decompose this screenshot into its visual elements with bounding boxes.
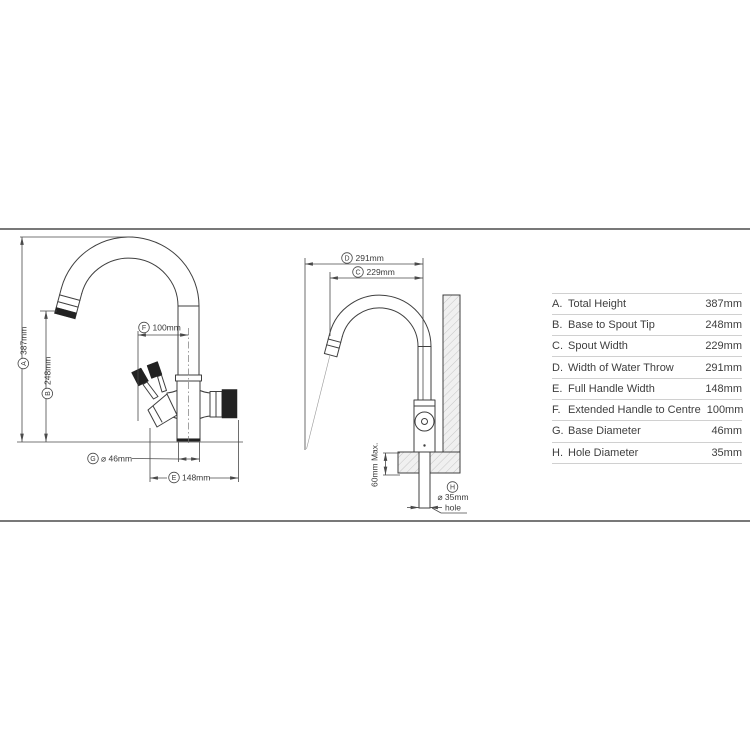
water-stream-line xyxy=(307,355,331,449)
spec-table-row: H. Hole Diameter 35mm xyxy=(552,442,742,463)
lever-shaft xyxy=(158,375,167,392)
spec-table-row: B. Base to Spout Tip 248mm xyxy=(552,314,742,335)
svg-text:229mm: 229mm xyxy=(367,267,395,277)
spec-row-key: E. xyxy=(552,383,568,395)
dim-width-of-water-throw: D 291mm xyxy=(305,253,423,450)
dim-hole-diameter: H ⌀ 35mm hole xyxy=(407,482,469,513)
spec-table-row: A. Total Height 387mm xyxy=(552,293,742,314)
spec-row-label: Width of Water Throw xyxy=(568,362,705,374)
spec-row-value: 229mm xyxy=(705,340,742,352)
svg-text:C: C xyxy=(355,270,360,277)
spec-table-row: G. Base Diameter 46mm xyxy=(552,420,742,441)
spec-row-label: Full Handle Width xyxy=(568,383,705,395)
spec-row-value: 387mm xyxy=(705,298,742,310)
spec-row-label: Extended Handle to Centre xyxy=(568,404,707,416)
svg-text:B: B xyxy=(45,391,52,396)
spec-row-value: 46mm xyxy=(711,425,742,437)
svg-text:148mm: 148mm xyxy=(182,473,210,483)
right-handle-cap xyxy=(222,390,237,419)
faucet-spec-sheet: A 387mm B 248mm F 100mm xyxy=(0,0,750,750)
svg-text:⌀ 35mm: ⌀ 35mm xyxy=(437,492,468,502)
shank-through-hole xyxy=(419,452,430,508)
spec-row-key: H. xyxy=(552,447,568,459)
dim-base-to-spout-tip: B 248mm xyxy=(40,311,57,442)
spec-row-value: 100mm xyxy=(707,404,744,416)
dim-base-diameter: G ⌀ 46mm xyxy=(88,442,200,464)
side-view-faucet-outline xyxy=(307,295,436,452)
spec-row-label: Hole Diameter xyxy=(568,447,711,459)
spec-row-key: B. xyxy=(552,319,568,331)
svg-text:A: A xyxy=(21,361,28,366)
svg-text:E: E xyxy=(172,475,177,482)
front-view: A 387mm B 248mm F 100mm xyxy=(17,237,243,483)
dim-spout-width: C 229mm xyxy=(330,267,423,336)
dial-knob xyxy=(415,412,434,431)
spec-row-key: D. xyxy=(552,362,568,374)
spec-table-row: C. Spout Width 229mm xyxy=(552,335,742,356)
spec-row-value: 248mm xyxy=(705,319,742,331)
svg-text:D: D xyxy=(344,256,349,263)
svg-text:G: G xyxy=(90,456,95,463)
spec-row-value: 35mm xyxy=(711,447,742,459)
spec-row-label: Base to Spout Tip xyxy=(568,319,705,331)
spec-row-key: F. xyxy=(552,404,568,416)
svg-text:387mm: 387mm xyxy=(19,327,29,355)
spec-row-key: A. xyxy=(552,298,568,310)
wall-section xyxy=(443,295,460,473)
svg-text:F: F xyxy=(142,325,146,332)
lever-shaft-2 xyxy=(143,382,158,399)
spec-table-row: F. Extended Handle to Centre 100mm xyxy=(552,399,742,420)
dim-worktop-thickness: 60mm Max. xyxy=(370,443,401,487)
spec-row-label: Total Height xyxy=(568,298,705,310)
spec-row-key: G. xyxy=(552,425,568,437)
aerator-tip xyxy=(55,307,77,318)
spec-row-label: Base Diameter xyxy=(568,425,711,437)
spec-row-key: C. xyxy=(552,340,568,352)
svg-text:248mm: 248mm xyxy=(43,357,53,385)
spec-row-value: 291mm xyxy=(705,362,742,374)
side-view: D 291mm C 229mm 60mm Max. xyxy=(305,253,469,513)
svg-text:H: H xyxy=(450,485,455,492)
spec-table-row: E. Full Handle Width 148mm xyxy=(552,378,742,399)
svg-text:⌀ 46mm: ⌀ 46mm xyxy=(101,454,132,464)
svg-text:100mm: 100mm xyxy=(153,323,181,333)
spec-row-value: 148mm xyxy=(705,383,742,395)
spec-row-label: Spout Width xyxy=(568,340,705,352)
svg-text:hole: hole xyxy=(445,503,461,513)
svg-text:291mm: 291mm xyxy=(356,253,384,263)
spec-table-row: D. Width of Water Throw 291mm xyxy=(552,356,742,377)
spec-table: A. Total Height 387mm B. Base to Spout T… xyxy=(552,293,742,464)
front-view-faucet-outline xyxy=(55,237,237,444)
svg-text:60mm Max.: 60mm Max. xyxy=(370,443,380,487)
